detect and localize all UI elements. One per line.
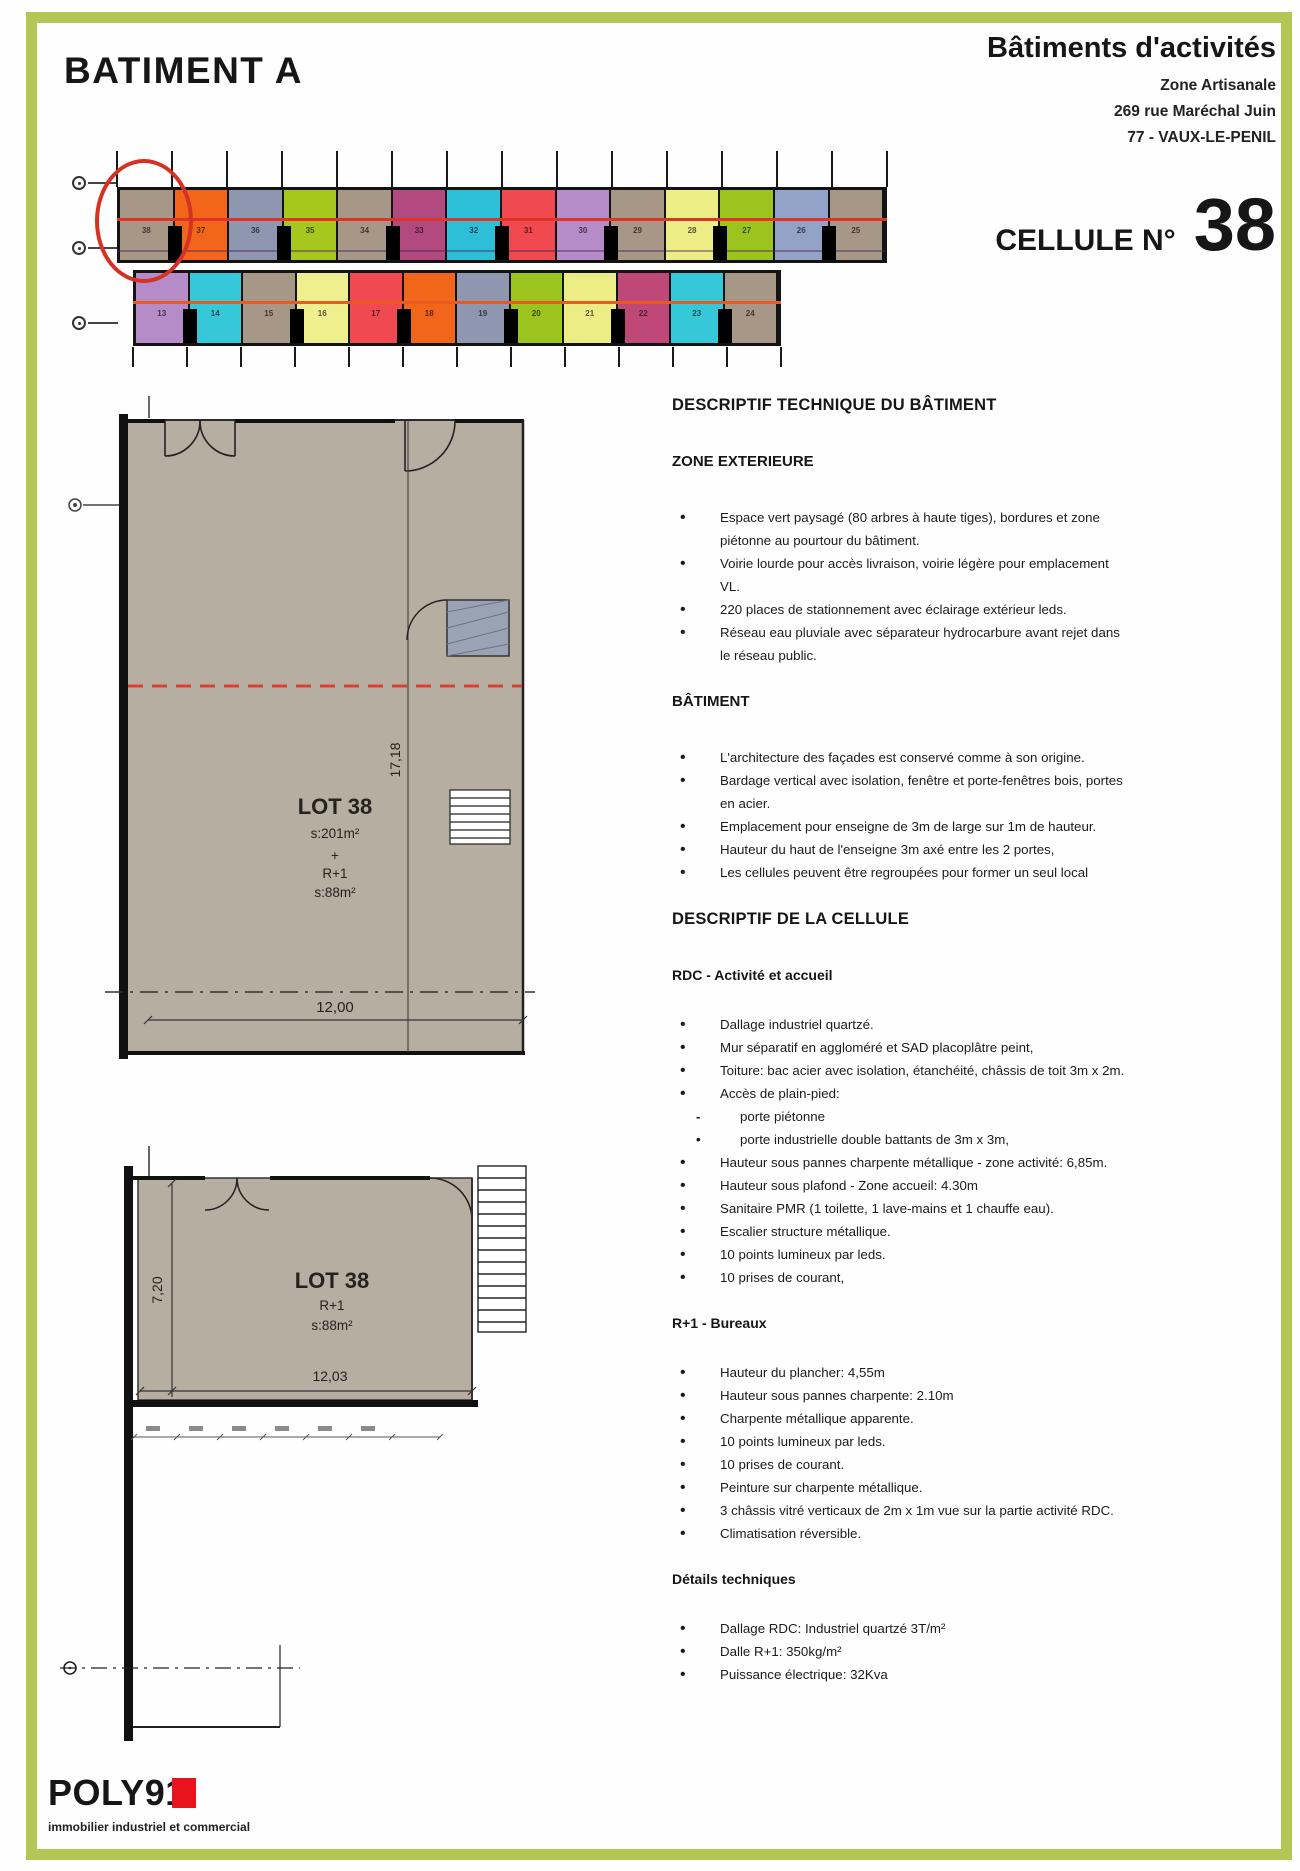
floor-plan-rdc: LOT 38 s:201m² + R+1 s:88m² 17,18 12,00 — [55, 395, 555, 1065]
cell-number: 28 — [666, 226, 719, 235]
door-block — [397, 309, 411, 343]
door-block — [822, 226, 836, 260]
cell-number: 14 — [190, 309, 242, 318]
grid-tick — [402, 347, 404, 367]
rdc-left-wall — [119, 414, 128, 1059]
cell-number: 30 — [557, 226, 610, 235]
site-plan-cell-18: 18 — [404, 273, 458, 343]
fire-line-bottom — [133, 301, 781, 304]
door-block — [604, 226, 618, 260]
door-block — [183, 309, 197, 343]
door-block — [718, 309, 732, 343]
bullet-item: 10 prises de courant. — [672, 1453, 1130, 1476]
rdc-area2-label: s:88m² — [314, 885, 356, 900]
cell-number: 32 — [447, 226, 500, 235]
bullet-item: Sanitaire PMR (1 toilette, 1 lave-mains … — [672, 1197, 1130, 1220]
cell-number: 25 — [830, 226, 883, 235]
site-plan-cell-17: 17 — [350, 273, 404, 343]
address-line-3: 77 - VAUX-LE-PENIL — [987, 125, 1276, 151]
bullet-item: Accès de plain-pied: — [672, 1082, 1130, 1105]
address-line-1: Zone Artisanale — [987, 73, 1276, 99]
bullet-item: Emplacement pour enseigne de 3m de large… — [672, 815, 1130, 838]
floor-plan-r1: 7,20 LOT 38 R+1 s:88m² 12,03 — [50, 1145, 550, 1745]
grid-tick — [501, 151, 503, 187]
grid-tick — [281, 151, 283, 187]
company-logo-text: POLY91 — [48, 1772, 186, 1814]
bullet-item: Réseau eau pluviale avec séparateur hydr… — [672, 621, 1130, 667]
cell-number: 17 — [350, 309, 402, 318]
site-plan-cell-20: 20 — [511, 273, 565, 343]
bullet-item: -porte piétonne — [672, 1105, 1130, 1128]
door-block — [277, 226, 291, 260]
bullet-item: 10 prises de courant, — [672, 1266, 1130, 1289]
grid-datum-line — [88, 322, 118, 324]
grid-tick — [556, 151, 558, 187]
sub-bullet-marker: - — [696, 1105, 700, 1128]
fire-line-top — [117, 218, 887, 221]
bullet-item: Hauteur sous plafond - Zone accueil: 4.3… — [672, 1174, 1130, 1197]
bullet-item: Les cellules peuvent être regroupées pou… — [672, 861, 1130, 884]
bullet-item: 10 points lumineux par leds. — [672, 1430, 1130, 1453]
bullet-item: Voirie lourde pour accès livraison, voir… — [672, 552, 1130, 598]
bullet-item: L'architecture des façades est conservé … — [672, 746, 1130, 769]
site-plan-cell-21: 21 — [564, 273, 618, 343]
door-block — [386, 226, 400, 260]
subsection-zone-exterieure: ZONE EXTERIEURE — [672, 453, 1130, 470]
cell-number-block: CELLULE N° 38 — [995, 192, 1276, 259]
site-plan: 3837363534333231302928272625 13141516171… — [70, 145, 930, 385]
cell-number: 31 — [502, 226, 555, 235]
cell-number: 23 — [671, 309, 723, 318]
door-block — [504, 309, 518, 343]
cell-number: 15 — [243, 309, 295, 318]
bullet-item: Puissance électrique: 32Kva — [672, 1663, 1130, 1686]
site-plan-cell-19: 19 — [457, 273, 511, 343]
grid-tick — [564, 347, 566, 367]
grid-tick — [618, 347, 620, 367]
grid-tick — [348, 347, 350, 367]
grid-tick — [672, 347, 674, 367]
cell-number: 18 — [404, 309, 456, 318]
rdc-sublist: -porte piétonne•porte industrielle doubl… — [672, 1105, 1130, 1151]
sub-bullet-marker: • — [696, 1128, 701, 1151]
subsection-rdc: RDC - Activité et accueil — [672, 967, 1130, 983]
subsection-r1-bureaux: R+1 - Bureaux — [672, 1315, 1130, 1331]
grid-tick — [132, 347, 134, 367]
bullet-item: Climatisation réversible. — [672, 1522, 1130, 1545]
bullet-item: Escalier structure métallique. — [672, 1220, 1130, 1243]
grid-tick — [391, 151, 393, 187]
r1-lot-label: LOT 38 — [295, 1268, 370, 1293]
site-plan-cell-22: 22 — [618, 273, 672, 343]
door-block — [290, 309, 304, 343]
details-list: Dallage RDC: Industriel quartzé 3T/m²Dal… — [672, 1617, 1130, 1686]
company-logo-red-square — [172, 1778, 196, 1808]
rdc-stairs — [450, 790, 510, 844]
bullet-item: Hauteur du haut de l'enseigne 3m axé ent… — [672, 838, 1130, 861]
r1-dim-horizontal: 12,03 — [312, 1368, 347, 1384]
door-block — [611, 309, 625, 343]
site-plan-cell-15: 15 — [243, 273, 297, 343]
building-title: BATIMENT A — [64, 50, 303, 92]
door-block — [713, 226, 727, 260]
section-title-batiment-tech: DESCRIPTIF TECHNIQUE DU BÂTIMENT — [672, 396, 1130, 415]
cell-number: 22 — [618, 309, 670, 318]
grid-tick — [294, 347, 296, 367]
rdc-room — [127, 420, 523, 1053]
subsection-batiment: BÂTIMENT — [672, 693, 1130, 710]
site-plan-row-top: 3837363534333231302928272625 — [117, 187, 887, 263]
cell-number: 19 — [457, 309, 509, 318]
subsection-details-techniques: Détails techniques — [672, 1571, 1130, 1587]
bullet-item: Peinture sur charpente métallique. — [672, 1476, 1130, 1499]
grid-tick — [336, 151, 338, 187]
cell-number: 29 — [611, 226, 664, 235]
grid-datum-icon — [72, 176, 86, 190]
site-plan-cell-23: 23 — [671, 273, 725, 343]
cell-number: 35 — [284, 226, 337, 235]
bullet-item: Hauteur sous pannes charpente métallique… — [672, 1151, 1130, 1174]
grid-tick — [780, 347, 782, 367]
bullet-item: Dallage industriel quartzé. — [672, 1013, 1130, 1036]
grid-tick — [510, 347, 512, 367]
cell-number-value: 38 — [1194, 192, 1276, 259]
bullet-item: 3 châssis vitré verticaux de 2m x 1m vue… — [672, 1499, 1130, 1522]
bullet-item: Hauteur sous pannes charpente: 2.10m — [672, 1384, 1130, 1407]
header-right-block: Bâtiments d'activités Zone Artisanale 26… — [987, 32, 1276, 151]
technical-description-column: DESCRIPTIF TECHNIQUE DU BÂTIMENT ZONE EX… — [672, 396, 1130, 1712]
grid-datum-icon — [72, 316, 86, 330]
site-plan-cell-13: 13 — [136, 273, 190, 343]
r1-bay-dimension-string — [131, 1426, 443, 1440]
bullet-item: Hauteur du plancher: 4,55m — [672, 1361, 1130, 1384]
cell-number: 34 — [338, 226, 391, 235]
bullet-item: Dallage RDC: Industriel quartzé 3T/m² — [672, 1617, 1130, 1640]
grid-tick — [611, 151, 613, 187]
cell-number: 26 — [775, 226, 828, 235]
r1-area-label: s:88m² — [311, 1318, 353, 1333]
cell-number: 20 — [511, 309, 563, 318]
bullet-item: •porte industrielle double battants de 3… — [672, 1128, 1130, 1151]
r1-level-label: R+1 — [319, 1298, 344, 1313]
r1-slab-edge — [124, 1400, 478, 1407]
cell-number: 36 — [229, 226, 282, 235]
cell-number: 21 — [564, 309, 616, 318]
highlight-circle-cell-38 — [95, 159, 193, 283]
site-plan-cell-16: 16 — [297, 273, 351, 343]
bullet-item: Charpente métallique apparente. — [672, 1407, 1130, 1430]
site-plan-row-bottom: 131415161718192021222324 — [133, 270, 781, 346]
grid-tick — [446, 151, 448, 187]
r1-left-wall — [124, 1166, 133, 1741]
cell-number-label: CELLULE N° — [995, 224, 1175, 258]
cell-number: 16 — [297, 309, 349, 318]
rdc-list: Dallage industriel quartzé.Mur séparatif… — [672, 1013, 1130, 1105]
grid-tick — [456, 347, 458, 367]
bullet-item: Dalle R+1: 350kg/m² — [672, 1640, 1130, 1663]
rdc-area-label: s:201m² — [311, 826, 360, 841]
address-line-2: 269 rue Maréchal Juin — [987, 99, 1276, 125]
r1-dim-vertical: 7,20 — [149, 1276, 165, 1303]
section-title-cellule: DESCRIPTIF DE LA CELLULE — [672, 910, 1130, 929]
company-tagline: immobilier industriel et commercial — [48, 1820, 250, 1834]
grid-tick — [666, 151, 668, 187]
bullet-item: 220 places de stationnement avec éclaira… — [672, 598, 1130, 621]
grid-tick — [186, 347, 188, 367]
rdc-dim-vertical: 17,18 — [387, 742, 403, 777]
grid-tick — [776, 151, 778, 187]
r1-stairs — [478, 1166, 526, 1332]
rdc-plus-label: + — [331, 848, 339, 863]
cell-number: 27 — [720, 226, 773, 235]
site-plan-cell-24: 24 — [725, 273, 779, 343]
rdc-level-label: R+1 — [322, 866, 347, 881]
grid-tick — [226, 151, 228, 187]
grid-tick — [726, 347, 728, 367]
brochure-page: BATIMENT A Bâtiments d'activités Zone Ar… — [0, 0, 1300, 1871]
bullet-item: Espace vert paysagé (80 arbres à haute t… — [672, 506, 1130, 552]
bullet-item: 10 points lumineux par leds. — [672, 1243, 1130, 1266]
site-plan-cell-14: 14 — [190, 273, 244, 343]
grid-datum-icon — [72, 241, 86, 255]
grid-tick — [886, 151, 888, 187]
zone-exterieure-list: Espace vert paysagé (80 arbres à haute t… — [672, 506, 1130, 667]
rdc-dim-horizontal: 12,00 — [316, 999, 354, 1016]
bullet-item: Mur séparatif en aggloméré et SAD placop… — [672, 1036, 1130, 1059]
bullet-item: Bardage vertical avec isolation, fenêtre… — [672, 769, 1130, 815]
rdc-list-2: Hauteur sous pannes charpente métallique… — [672, 1151, 1130, 1289]
document-title: Bâtiments d'activités — [987, 32, 1276, 65]
cell-number: 24 — [725, 309, 777, 318]
r1-list: Hauteur du plancher: 4,55mHauteur sous p… — [672, 1361, 1130, 1545]
grid-tick — [721, 151, 723, 187]
batiment-list: L'architecture des façades est conservé … — [672, 746, 1130, 884]
rdc-lot-label: LOT 38 — [298, 794, 373, 819]
grid-tick — [831, 151, 833, 187]
grid-tick — [240, 347, 242, 367]
bullet-item: Toiture: bac acier avec isolation, étanc… — [672, 1059, 1130, 1082]
cell-number: 13 — [136, 309, 188, 318]
cell-number: 33 — [393, 226, 446, 235]
door-block — [495, 226, 509, 260]
